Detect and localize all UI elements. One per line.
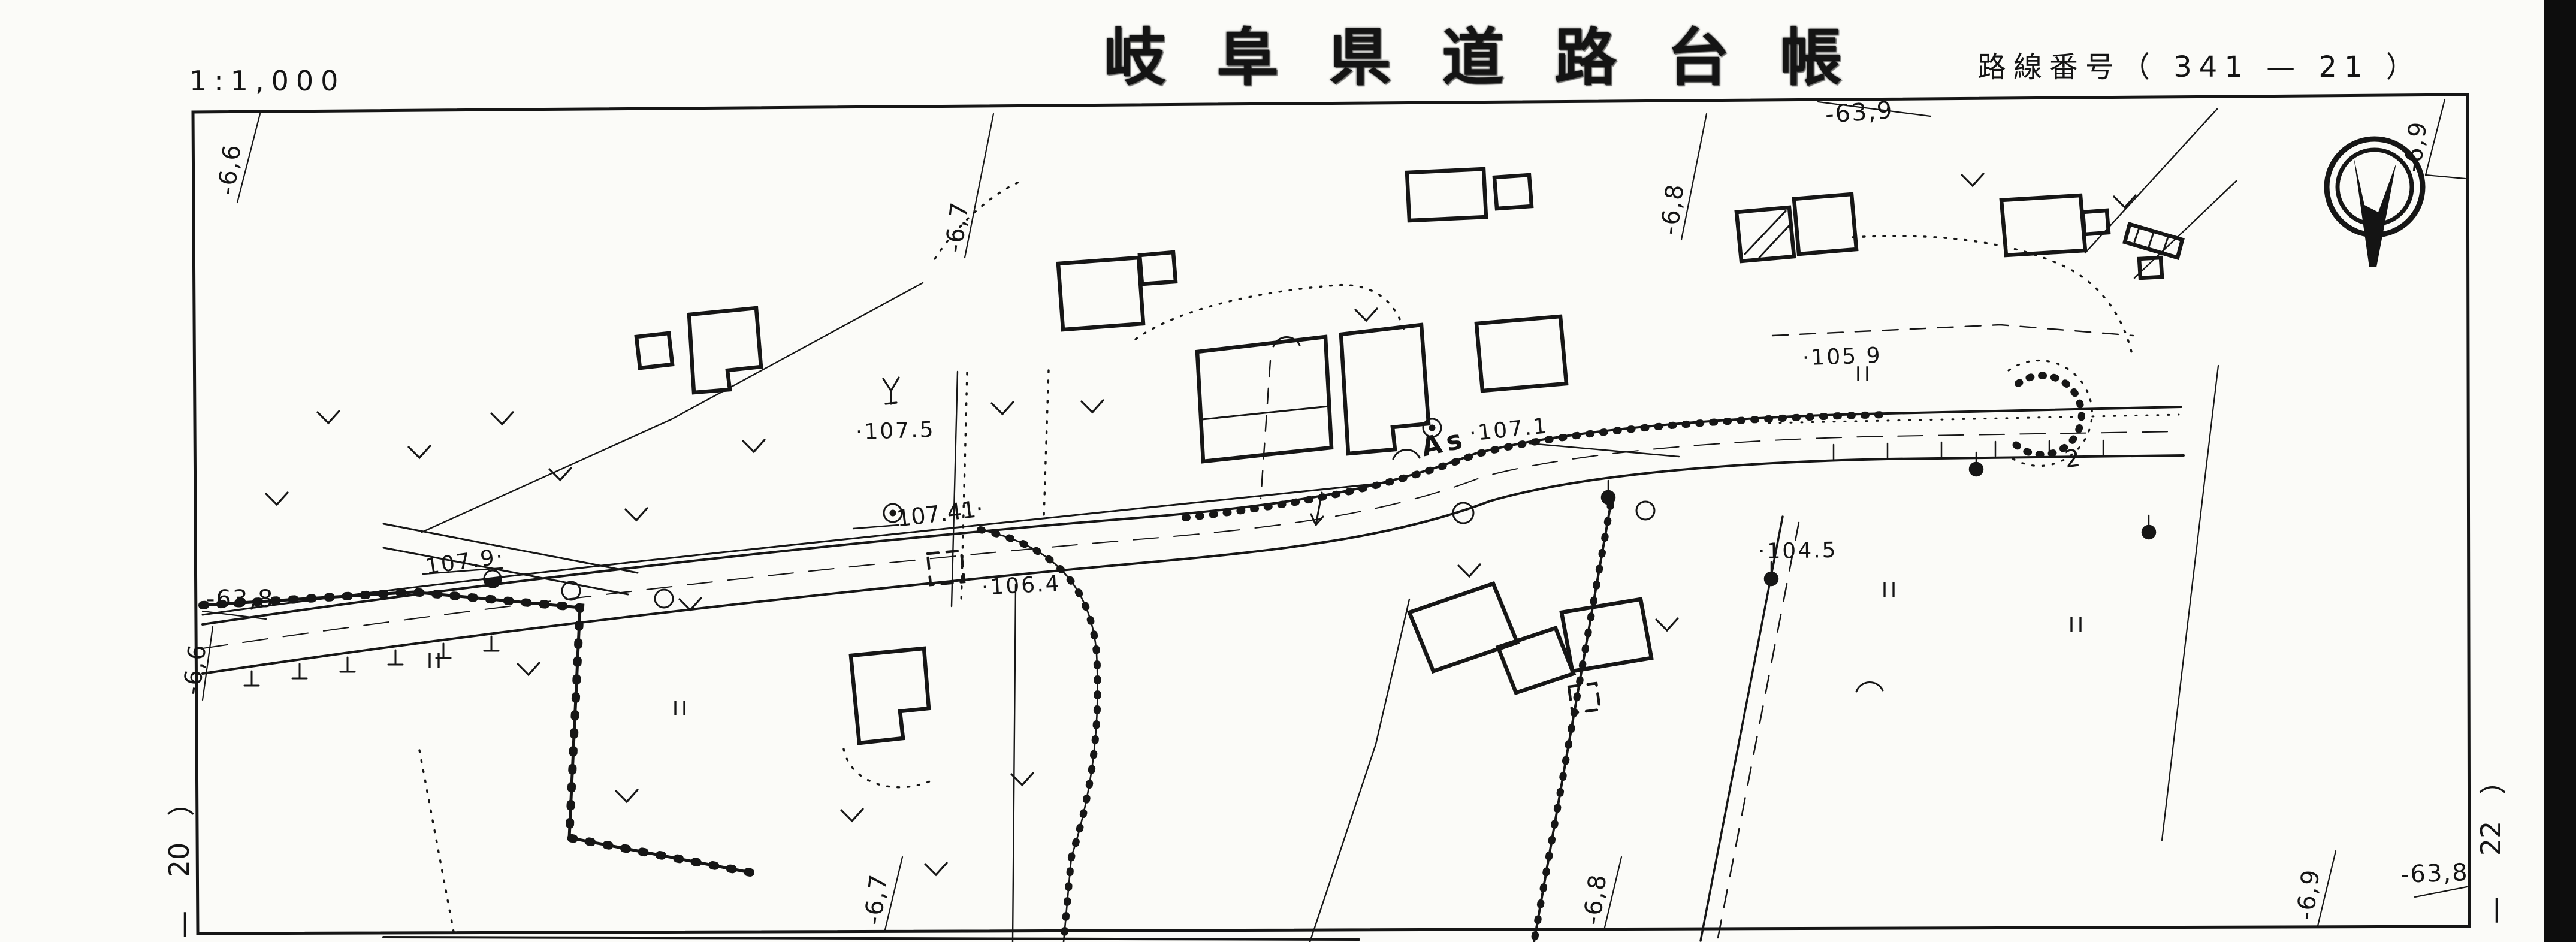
vegetation-marks: [266, 174, 2136, 875]
paddy-mark: II: [2068, 615, 2086, 635]
route-number: 路線番号（ 341 — 21 ）: [1977, 53, 2422, 81]
grid-label-top-y: -63,9: [1825, 98, 1894, 127]
map-border: [193, 95, 2469, 934]
sheet-title: 岐阜県道路台帳: [1104, 26, 1892, 89]
map-symbols: [244, 174, 2155, 875]
grid-label-top-x3: -6,8: [1657, 182, 1687, 236]
paddy-mark: II: [427, 651, 445, 671]
sheet-link-left-number: 20: [165, 839, 193, 881]
parcel-lines: [419, 109, 2236, 942]
spot-elevation-107-5: ·107.5: [855, 419, 935, 444]
paddy-mark: II: [1882, 580, 1899, 600]
lot-number-label: 2: [2063, 446, 2082, 472]
map-scale: 1:1,000: [189, 67, 345, 95]
grid-label-top-x2: -6,7: [942, 200, 972, 254]
y-symbol: [883, 378, 899, 404]
scan-edge-band: [383, 0, 2576, 942]
grid-label-right-y: -63,8: [2400, 861, 2469, 887]
grid-label-top-x1: -6,6: [215, 143, 244, 197]
grid-label-left-y: -63,8: [206, 587, 274, 611]
grid-label-top-x4: -6,9: [2400, 120, 2430, 174]
grid-label-bottom-x3: -6,9: [2293, 868, 2323, 922]
road-ledger-sheet: 1:1,000 岐阜県道路台帳 路線番号（ 341 — 21 ） -6,6 -6…: [0, 0, 2576, 942]
bush-marks: [1273, 337, 1883, 692]
sheet-link-left-dash: —: [169, 904, 197, 942]
grid-label-left-x: -6,6: [180, 642, 210, 696]
buildings: [636, 169, 2182, 743]
sheet-link-left-paren: ）: [168, 781, 195, 823]
sheet-link-right-paren: ）: [2480, 760, 2507, 802]
sheet-link-right-number: 22: [2477, 817, 2505, 859]
map-drawing: [0, 0, 2576, 942]
grid-lines: [203, 99, 2467, 930]
paddy-mark: II: [672, 699, 690, 719]
grid-label-bottom-x2: -6,8: [1580, 872, 1610, 926]
spot-elevation-106-4: ·106.4: [981, 573, 1061, 599]
paddy-mark: II: [1855, 364, 1873, 385]
spot-elevation-104-5: ·104.5: [1758, 540, 1838, 563]
sheet-link-right-dash: —: [2481, 889, 2508, 931]
circle-symbols: [562, 502, 1654, 608]
benchmark-symbol: [484, 570, 501, 587]
grid-label-bottom-x1: -6,7: [861, 872, 891, 926]
